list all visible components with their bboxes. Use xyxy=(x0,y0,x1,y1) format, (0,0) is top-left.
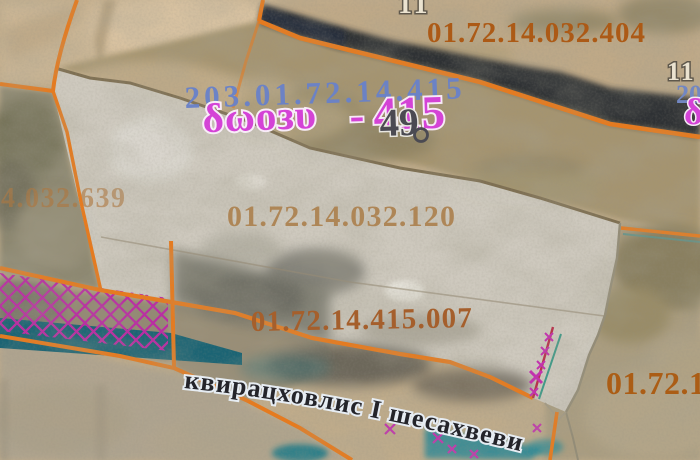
svg-text:01.72.14.032.404: 01.72.14.032.404 xyxy=(427,17,646,49)
svg-text:-: - xyxy=(349,91,365,140)
svg-text:δ: δ xyxy=(684,92,700,133)
svg-text:49: 49 xyxy=(379,101,419,145)
svg-text:01.72.14: 01.72.14 xyxy=(606,365,700,401)
svg-text:11: 11 xyxy=(398,0,430,20)
svg-text:δωοзυ: δωοзυ xyxy=(202,91,318,141)
svg-text:01.72.14.415.007: 01.72.14.415.007 xyxy=(251,302,474,338)
svg-text:01.72.14.032.120: 01.72.14.032.120 xyxy=(227,200,456,233)
